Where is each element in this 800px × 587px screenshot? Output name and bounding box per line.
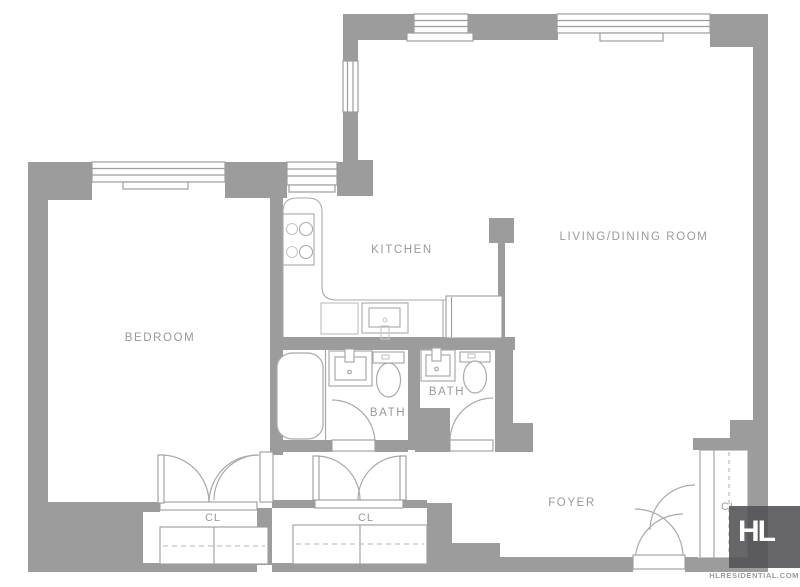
dishwasher <box>321 303 358 334</box>
room-label-kitchen: KITCHEN <box>371 244 433 256</box>
floor-plan-drawing <box>0 0 800 587</box>
door-arc-bedroom-closet-left <box>161 455 209 502</box>
kitchen-fixtures <box>283 198 502 339</box>
window-sill <box>600 33 663 41</box>
room-label-foyer: FOYER <box>548 497 596 509</box>
window-sill <box>123 182 188 189</box>
bath2-toilet <box>464 361 487 393</box>
walls <box>28 14 768 572</box>
door-arc-hall-closet-right <box>358 456 402 500</box>
room-label-closet-bedroom: CL <box>205 512 221 524</box>
room-label-bedroom: BEDROOM <box>125 332 196 344</box>
room-label-bath-2: BATH <box>429 386 465 398</box>
door-arc-foyer-closet-top <box>650 485 695 530</box>
door-arc-bedroom-closet-right <box>209 455 257 502</box>
door-arc-entry <box>635 509 683 557</box>
door-arc-bath2 <box>450 398 493 441</box>
hl-logo-monogram: HL <box>738 515 774 548</box>
bath1-toilet <box>377 363 401 397</box>
column <box>489 218 514 243</box>
window-sill <box>289 185 335 192</box>
door-arc-bedroom-entry <box>214 455 259 500</box>
window-bedroom <box>92 162 225 182</box>
room-label-living-dining: LIVING/DINING ROOM <box>560 231 709 243</box>
website-url: HLRESIDENTIAL.COM <box>709 571 799 580</box>
door-arc-bath1 <box>332 400 375 443</box>
window-sill <box>407 33 473 41</box>
door-arc-hall-closet-left <box>316 456 360 500</box>
bathtub <box>277 353 323 439</box>
window-kitchen-side <box>343 61 358 112</box>
window-living-1 <box>414 14 468 33</box>
floor-plan: BEDROOM KITCHEN LIVING/DINING ROOM BATH … <box>0 0 800 587</box>
refrigerator <box>446 296 502 338</box>
room-label-closet-hall: CL <box>358 512 374 524</box>
kitchen-counter <box>283 198 448 337</box>
windows <box>92 14 710 192</box>
room-label-bath-1: BATH <box>370 407 406 419</box>
window-kitchen <box>287 162 337 185</box>
hl-logo: HL <box>729 506 800 568</box>
window-living-2 <box>557 14 710 33</box>
